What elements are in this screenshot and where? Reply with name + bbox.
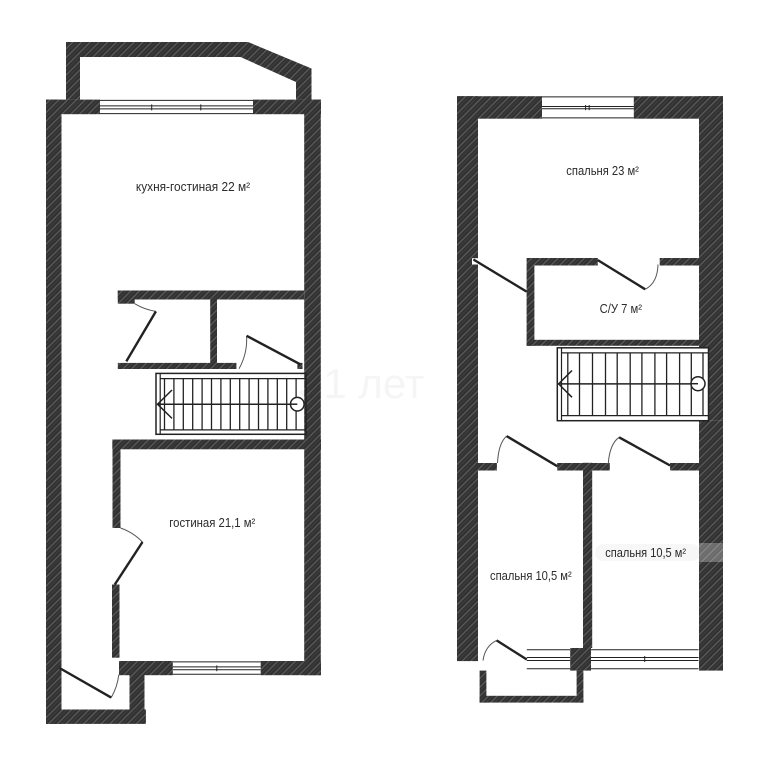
svg-text:С/У 7 м²: С/У 7 м² (600, 301, 643, 316)
svg-text:кухня-гостиная 22 м²: кухня-гостиная 22 м² (136, 179, 251, 194)
svg-text:спальня 23 м²: спальня 23 м² (566, 163, 639, 178)
svg-text:гостиная 21,1 м²: гостиная 21,1 м² (169, 515, 256, 530)
svg-text:спальня 10,5 м²: спальня 10,5 м² (490, 568, 572, 583)
